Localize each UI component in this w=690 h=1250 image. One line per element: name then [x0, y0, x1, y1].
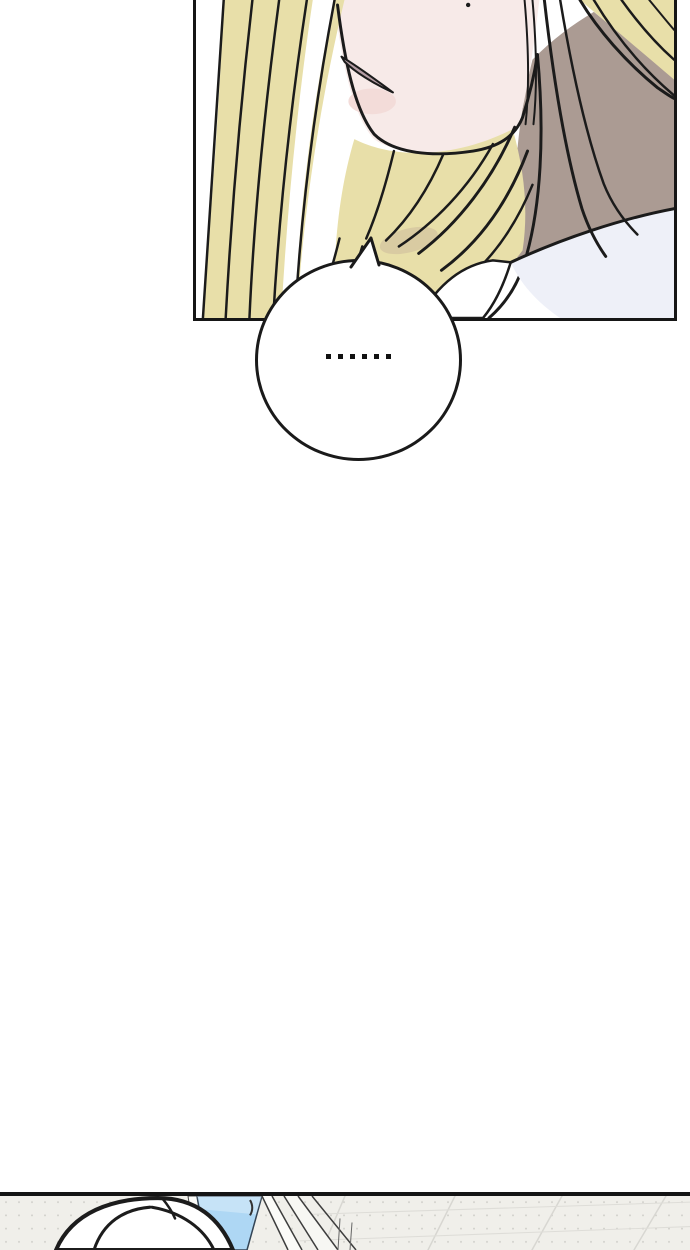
beauty-mark — [466, 3, 470, 7]
scene-artwork — [0, 1196, 690, 1250]
portrait-artwork — [196, 0, 674, 318]
comic-strip: …… — [0, 0, 690, 1250]
panel-gutter — [0, 462, 690, 1192]
silence-dots — [326, 354, 391, 359]
panel-portrait — [193, 0, 677, 321]
panel-scene — [0, 1192, 690, 1250]
speech-bubble-tail — [340, 228, 392, 272]
speech-bubble: …… — [255, 259, 462, 461]
